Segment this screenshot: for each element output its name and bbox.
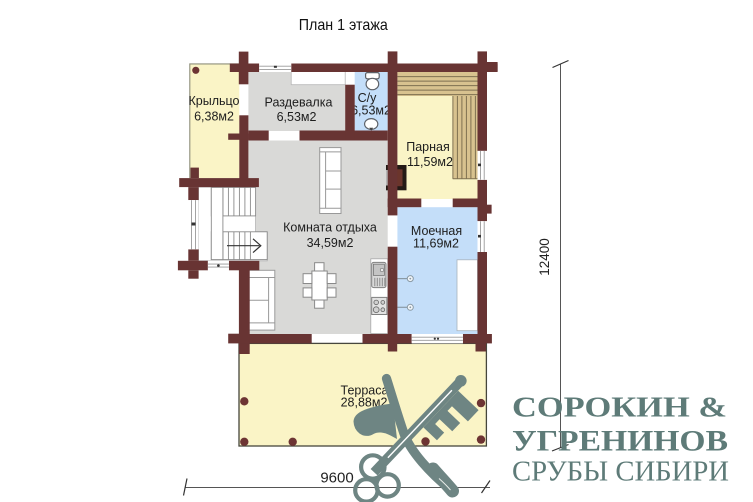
svg-text:План 1 этажа: План 1 этажа (299, 17, 388, 34)
svg-text:УГРЕНИНОВ: УГРЕНИНОВ (512, 425, 728, 458)
svg-text:12400: 12400 (537, 238, 552, 276)
svg-text:6,53м2: 6,53м2 (277, 110, 317, 124)
svg-text:34,59м2: 34,59м2 (307, 236, 354, 250)
svg-text:Раздевалка: Раздевалка (265, 96, 333, 110)
svg-text:6,53м2: 6,53м2 (351, 104, 391, 118)
svg-text:11,69м2: 11,69м2 (413, 237, 459, 251)
svg-text:СОРОКИН &: СОРОКИН & (512, 393, 727, 424)
svg-text:11,59м2: 11,59м2 (407, 155, 453, 169)
svg-text:Комната отдыха: Комната отдыха (283, 221, 377, 235)
svg-text:СРУБЫ СИБИРИ: СРУБЫ СИБИРИ (512, 457, 729, 488)
svg-text:Парная: Парная (406, 140, 450, 154)
svg-text:9600: 9600 (320, 470, 353, 487)
svg-text:6,38м2: 6,38м2 (194, 110, 234, 124)
svg-text:Крыльцо: Крыльцо (189, 94, 240, 108)
